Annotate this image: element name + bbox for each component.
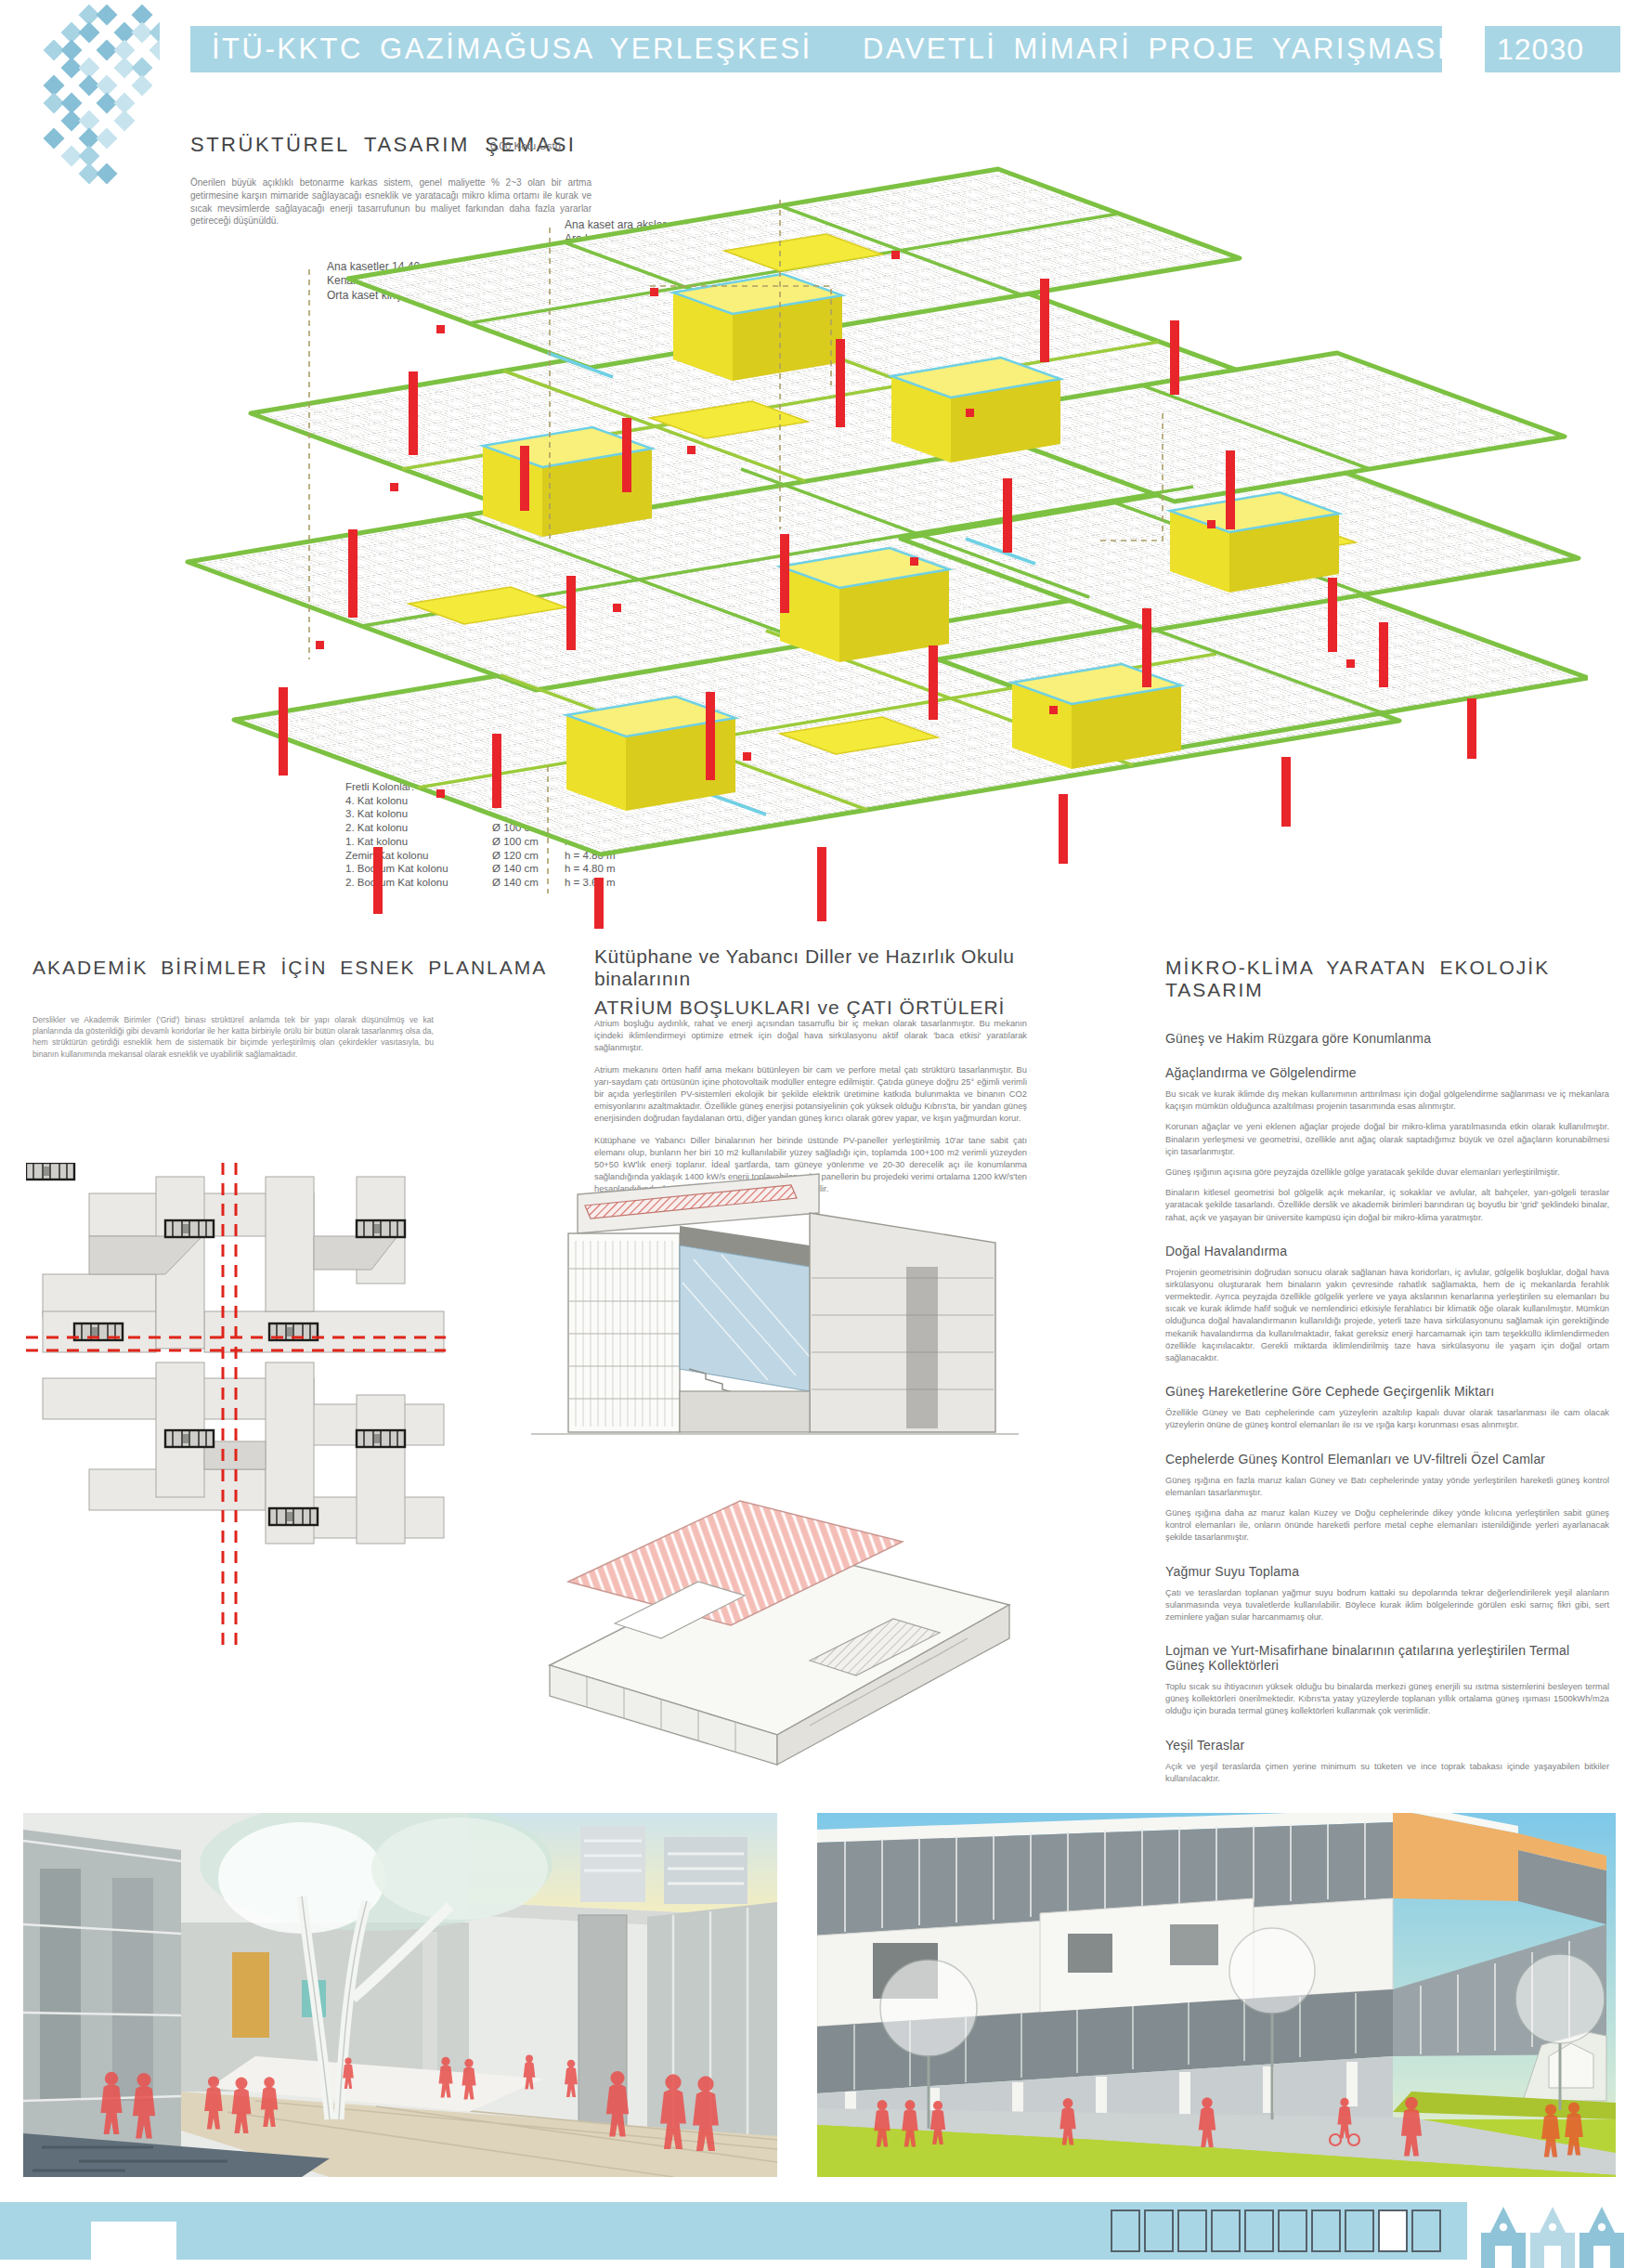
flexible-plan-diagram bbox=[26, 1163, 446, 1683]
logo-diamond bbox=[97, 163, 118, 185]
eko-paragraph: Binaların kitlesel geometrisi bol gölgel… bbox=[1165, 1187, 1609, 1224]
page-box-10 bbox=[1411, 2209, 1441, 2252]
logo-diamond bbox=[97, 5, 118, 26]
competition-code: 12030 bbox=[1497, 26, 1584, 72]
eko-paragraph: Güneş ışığına daha az maruz kalan Kuzey … bbox=[1165, 1507, 1609, 1545]
atrium-section-drawing bbox=[513, 1157, 1033, 1447]
esnek-planlama-body: Derslikler ve Akademik Birimler ('Grid')… bbox=[32, 1014, 434, 1060]
page-box-5 bbox=[1244, 2209, 1274, 2252]
eko-paragraph: Açık ve yeşil teraslarda çimen yerine mi… bbox=[1165, 1761, 1609, 1785]
atrium-roof-axonometric bbox=[503, 1456, 1034, 1768]
eko-paragraph: Güneş ışığına en fazla maruz kalan Güney… bbox=[1165, 1475, 1609, 1499]
logo-diamond bbox=[132, 75, 153, 97]
header-notch bbox=[1442, 11, 1485, 72]
structural-axonometric-drawing bbox=[130, 139, 1588, 929]
atrium-para: Atrium mekanını örten hafif ama mekanı b… bbox=[594, 1064, 1027, 1126]
page-box-3 bbox=[1177, 2209, 1207, 2252]
footer-door-notch bbox=[91, 2222, 176, 2260]
eko-subheading: Lojman ve Yurt-Misafirhane binalarının ç… bbox=[1165, 1643, 1609, 1673]
roof-axo-masses bbox=[550, 1501, 1009, 1765]
section-heading-esnek-planlama: AKADEMİK BİRİMLER İÇİN ESNEK PLANLAMA bbox=[32, 957, 547, 979]
eko-paragraph: Güneş ışığının açısına göre peyzajda öze… bbox=[1165, 1167, 1609, 1179]
presentation-board: İTÜ-KKTC GAZİMAĞUSA YERLEŞKESİ DAVETLİ M… bbox=[0, 0, 1625, 2268]
eko-paragraph: Projenin geometrisinin doğrudan sonucu o… bbox=[1165, 1267, 1609, 1365]
eko-subheading: Cephelerde Güneş Kontrol Elemanları ve U… bbox=[1165, 1452, 1609, 1466]
page-title: İTÜ-KKTC GAZİMAĞUSA YERLEŞKESİ DAVETLİ M… bbox=[212, 26, 1448, 72]
page-box-4 bbox=[1211, 2209, 1241, 2252]
logo-diamond bbox=[149, 40, 161, 61]
page-box-8 bbox=[1345, 2209, 1374, 2252]
eko-subheading: Yağmur Suyu Toplama bbox=[1165, 1564, 1609, 1579]
eko-paragraph: Bu sıcak ve kurak iklimde dış mekan kull… bbox=[1165, 1088, 1609, 1113]
eko-subheading: Doğal Havalandırma bbox=[1165, 1244, 1609, 1258]
gable-silhouettes bbox=[1481, 2207, 1624, 2268]
eko-subheading: Güneş Hareketlerine Göre Cephede Geçirge… bbox=[1165, 1384, 1609, 1399]
footer-page-strip bbox=[1111, 2209, 1441, 2252]
logo-diamond bbox=[97, 128, 118, 150]
eko-sections: Güneş ve Hakim Rüzgara göre KonumlanmaAğ… bbox=[1165, 1031, 1609, 1785]
orange-door bbox=[232, 1952, 269, 2038]
page-box-7 bbox=[1311, 2209, 1341, 2252]
famagusta-gables-icon bbox=[1481, 2201, 1625, 2268]
waffle-slab-plates bbox=[188, 169, 1588, 854]
eko-subheading: Güneş ve Hakim Rüzgara göre Konumlanma bbox=[1165, 1031, 1609, 1046]
eko-paragraph: Korunan ağaçlar ve yeni eklenen ağaçlar … bbox=[1165, 1121, 1609, 1158]
page-box-6 bbox=[1278, 2209, 1307, 2252]
eko-paragraph: Özellikle Güney ve Batı cephelerinde cam… bbox=[1165, 1407, 1609, 1431]
page-box-1 bbox=[1111, 2209, 1140, 2252]
section-ekolojik-tasarim: MİKRO-KLİMA YARATAN EKOLOJİK TASARIM Gün… bbox=[1165, 957, 1609, 1785]
logo-diamond bbox=[114, 111, 136, 132]
atrium-heading-line2: ATRİUM BOŞLUKLARI ve ÇATI ÖRTÜLERİ bbox=[594, 997, 1031, 1019]
eko-paragraph: Çatı ve teraslardan toplanan yağmur suyu… bbox=[1165, 1587, 1609, 1624]
atrium-heading-line1: Kütüphane ve Yabancı Diller ve Hazırlık … bbox=[594, 945, 1031, 990]
logo-diamond bbox=[79, 22, 100, 44]
logo-diamond bbox=[149, 22, 161, 44]
page-box-9 bbox=[1378, 2209, 1408, 2252]
atrium-para: Atrium boşluğu aydınlık, rahat ve enerji… bbox=[594, 1018, 1027, 1055]
section-masses bbox=[568, 1174, 995, 1432]
section-heading-ekolojik: MİKRO-KLİMA YARATAN EKOLOJİK TASARIM bbox=[1165, 957, 1609, 1001]
exterior-render bbox=[817, 1813, 1616, 2177]
logo-diamond bbox=[44, 128, 65, 150]
page-box-2 bbox=[1144, 2209, 1174, 2252]
eko-subheading: Yeşil Teraslar bbox=[1165, 1738, 1609, 1753]
eko-paragraph: Toplu sıcak su ihtiyacının yüksek olduğu… bbox=[1165, 1681, 1609, 1718]
eko-subheading: Ağaçlandırma ve Gölgelendirme bbox=[1165, 1065, 1609, 1080]
courtyard-render bbox=[23, 1813, 777, 2177]
section-heading-atrium: Kütüphane ve Yabancı Diller ve Hazırlık … bbox=[594, 945, 1031, 1019]
